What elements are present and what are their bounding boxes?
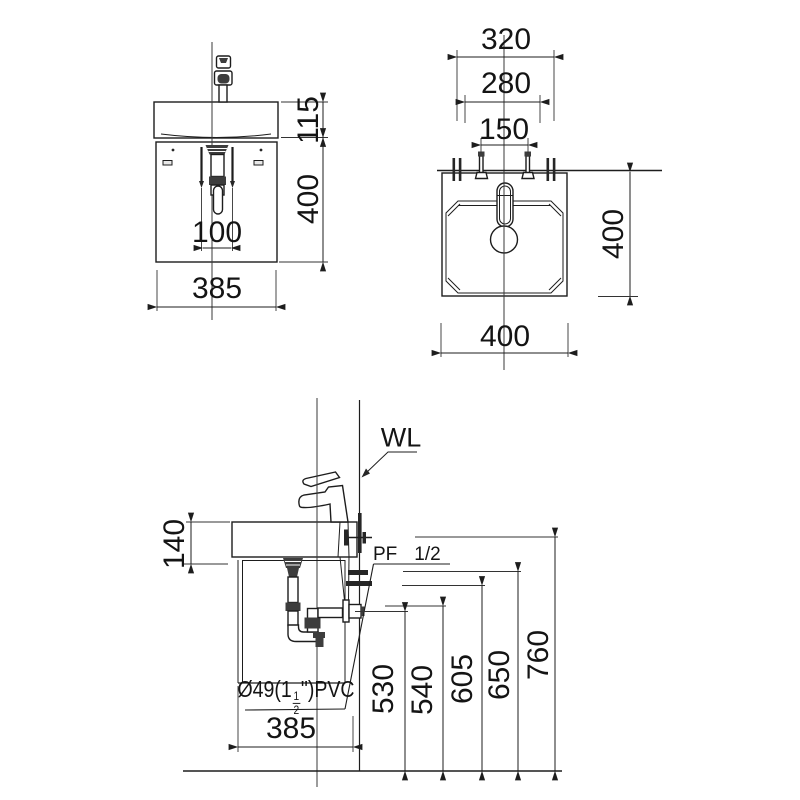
technical-drawing-page: 115 400 100 385 320 280 150 400 400 WL P…	[0, 0, 800, 800]
p-trap-plumbing	[283, 557, 372, 647]
bracket-mark	[553, 158, 556, 181]
dim-text-530: 530	[369, 664, 399, 714]
wl-leader	[365, 452, 417, 474]
pvc-label-prefix: Ø49(1	[237, 676, 291, 702]
bracket-mark	[459, 158, 462, 181]
trap-pipe-upper	[288, 577, 298, 603]
bolt-base	[476, 173, 488, 179]
dim-text-140: 140	[160, 519, 190, 569]
dim-text-150: 150	[479, 115, 529, 145]
pvc-pipe-label: Ø49(112")PVC	[237, 678, 354, 716]
faucet-front	[215, 56, 233, 102]
mounting-bolt-right	[522, 152, 534, 179]
side-view	[183, 398, 562, 787]
faucet-side	[299, 472, 348, 522]
bolt-stem	[526, 156, 530, 173]
dim-text-760: 760	[524, 630, 554, 680]
door-hinge-dot	[172, 149, 175, 152]
sink-front-outline	[154, 102, 278, 138]
dim-text-385-side: 385	[266, 714, 316, 744]
supply-label-size: 1/2	[414, 545, 440, 564]
cleanout-plug	[316, 638, 324, 647]
riser-coupling	[305, 618, 321, 629]
dim-text-400-width: 400	[480, 322, 530, 352]
bolt-base	[522, 173, 534, 179]
dim-text-540: 540	[408, 665, 438, 715]
dim-text-400-depth: 400	[599, 209, 629, 259]
door-handle-right	[254, 161, 263, 166]
door-handle-left	[163, 161, 172, 166]
dim-text-320: 320	[481, 25, 531, 55]
faucet-lever	[303, 472, 340, 487]
wall-thick-segment	[358, 513, 362, 553]
trap-coupling	[286, 603, 301, 612]
dim-text-650: 650	[485, 650, 515, 700]
mounting-bolt-left	[476, 152, 488, 179]
cleanout-band	[313, 632, 325, 638]
faucet-body-spout	[299, 486, 348, 523]
pipe-fitting-bar	[348, 570, 368, 575]
dim-text-100: 100	[192, 218, 242, 248]
dim-text-400-front: 400	[294, 174, 324, 224]
slope-pipe-line	[349, 557, 350, 601]
drain-coupling	[209, 177, 226, 186]
supply-label-pf: PF	[373, 545, 397, 564]
bracket-mark	[547, 158, 550, 181]
bracket-mark	[453, 158, 456, 181]
dim-text-280: 280	[481, 69, 531, 99]
valve-tick	[363, 532, 367, 544]
trap-pipe-lower	[288, 611, 298, 626]
pipe-fitting-bar	[346, 581, 372, 586]
drain-flange	[206, 145, 229, 155]
valve-handle	[344, 530, 349, 546]
dim-text-385-front: 385	[192, 274, 242, 304]
drain-flange-side	[283, 558, 303, 568]
drain-pipe	[211, 155, 224, 177]
fraction-numerator: 1	[293, 690, 300, 704]
dim-text-605: 605	[448, 654, 478, 704]
slope-pipe-line	[340, 557, 345, 601]
supply-label: PF 1/2	[373, 545, 441, 564]
pvc-label-suffix: ")PVC	[301, 676, 355, 702]
faucet-handle-fill	[218, 74, 230, 84]
door-hinge-dot	[260, 149, 263, 152]
wall-line-label: WL	[381, 425, 422, 452]
drain-taper	[287, 568, 299, 577]
dim-text-115: 115	[294, 96, 324, 144]
horizontal-waste-pipe	[318, 608, 343, 618]
faucet-shaft	[219, 85, 227, 102]
wall-flange	[343, 600, 349, 622]
drawing-canvas	[0, 0, 800, 800]
overflow-tube	[214, 186, 223, 214]
top-view	[437, 35, 662, 370]
bolt-stem	[480, 156, 484, 173]
